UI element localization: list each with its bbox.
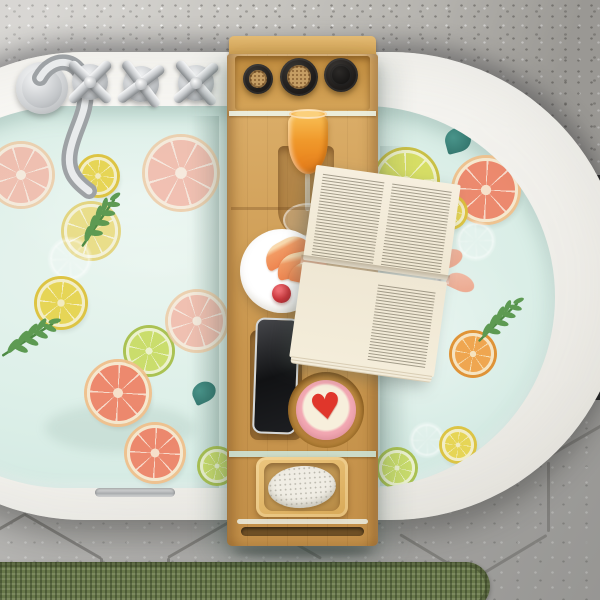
glass-rim (289, 109, 327, 119)
bathtub-scene: ♥ (0, 0, 600, 600)
open-book[interactable] (286, 159, 463, 384)
cork-stopper (287, 65, 311, 89)
bottle-cap (330, 64, 352, 86)
overflow-slot (95, 488, 175, 497)
cork-stopper (249, 70, 267, 88)
black-bottle[interactable] (324, 58, 358, 92)
tile-grout-line (24, 513, 102, 560)
tray-shadow (234, 545, 372, 557)
leaf-sprig (1, 311, 62, 366)
tile-grout-line (547, 462, 550, 532)
book-text (381, 184, 452, 274)
tile-grout-line (0, 512, 27, 559)
tray-seam (237, 519, 368, 524)
cork-bottle[interactable] (280, 58, 318, 96)
book-text (368, 283, 436, 368)
grapefruit-slice (127, 425, 183, 481)
grapefruit-slice (168, 292, 226, 350)
book-text (312, 174, 385, 264)
cross-handle[interactable] (165, 52, 227, 114)
white-slice (458, 223, 494, 259)
white-slice (411, 424, 443, 456)
cork-bottle[interactable] (243, 64, 273, 94)
leaf-sprig (475, 297, 527, 344)
lemon-slice (442, 429, 474, 461)
bath-bomb[interactable]: ♥ (296, 380, 356, 440)
cherry (272, 284, 291, 303)
handle-center (84, 76, 96, 88)
grapefruit-slice (145, 137, 217, 209)
bath-rug (0, 562, 490, 600)
cross-handle[interactable] (108, 51, 174, 117)
heart-icon: ♥ (292, 373, 360, 441)
grapefruit-slice (87, 362, 149, 424)
lime-slice (379, 450, 415, 486)
tray-bottom-handle[interactable] (241, 527, 364, 536)
